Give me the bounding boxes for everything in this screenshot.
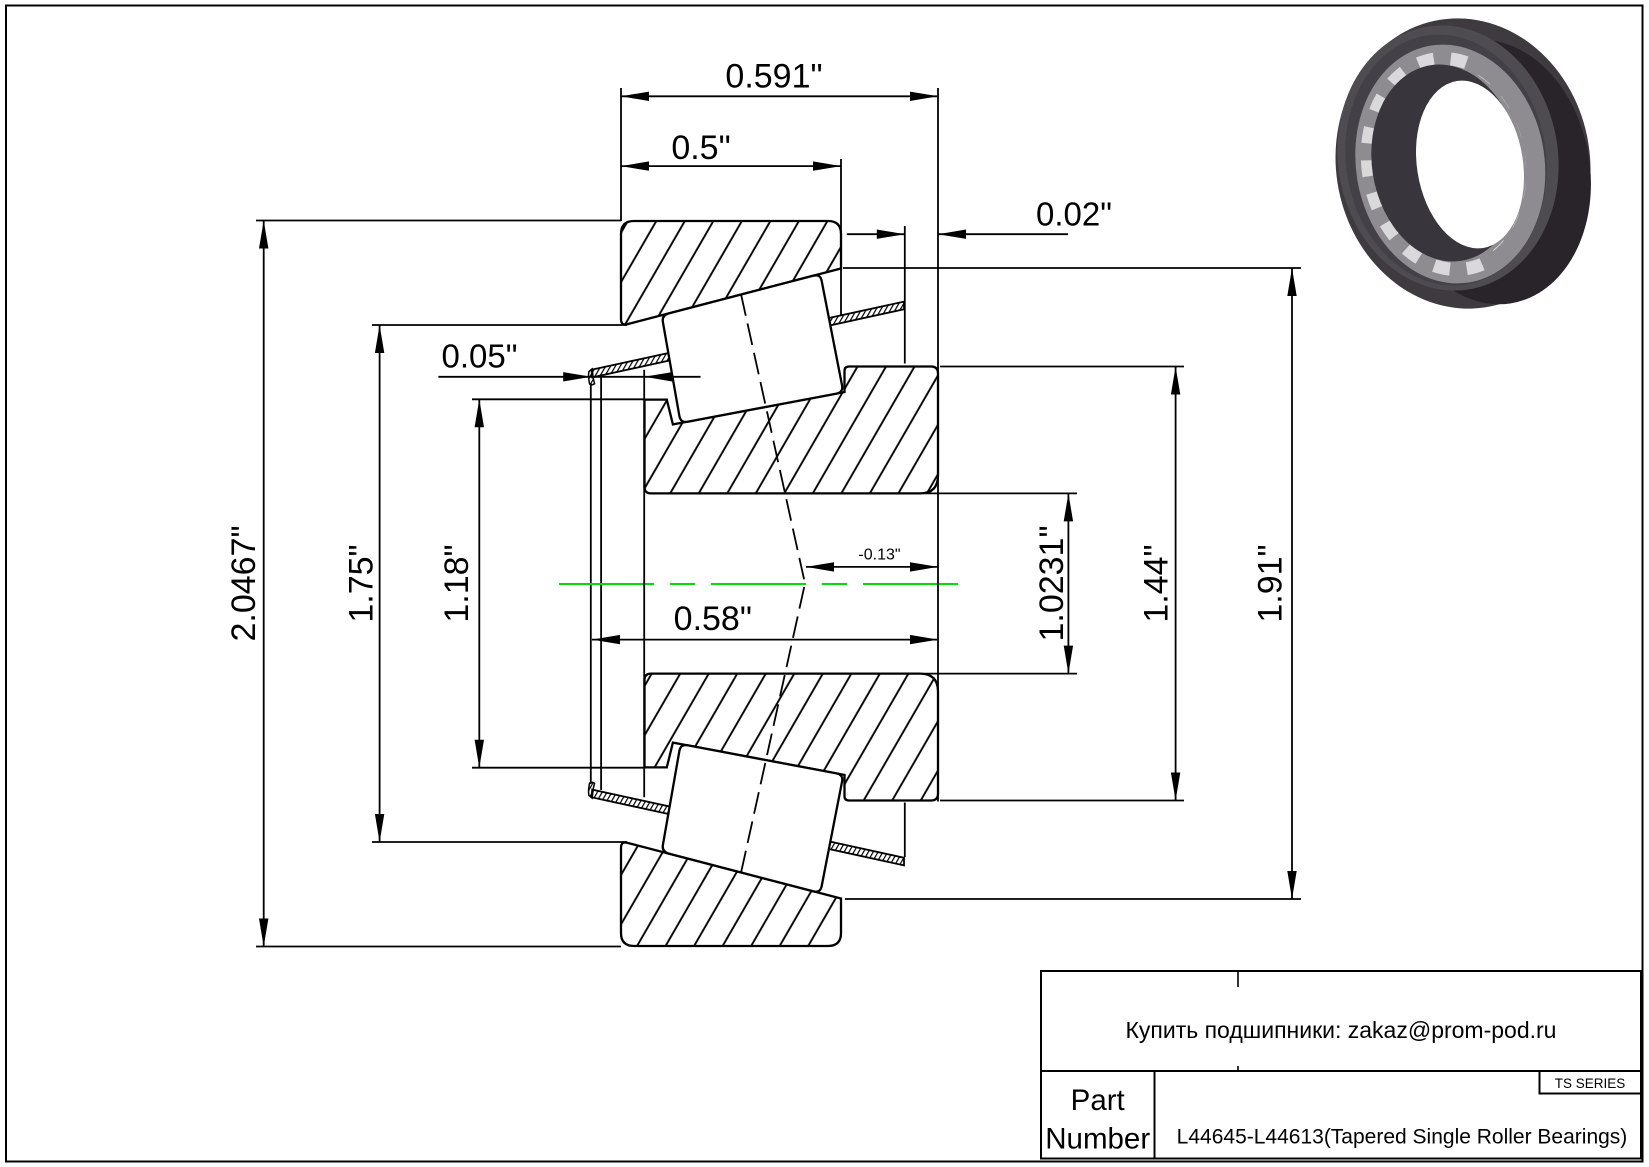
- svg-text:-0.13": -0.13": [858, 547, 900, 564]
- svg-text:Number: Number: [1045, 1123, 1150, 1156]
- svg-text:L44645-L44613(Tapered Single R: L44645-L44613(Tapered Single Roller Bear…: [1177, 1126, 1628, 1149]
- svg-text:1.91": 1.91": [1251, 544, 1289, 622]
- svg-text:2.0467": 2.0467": [225, 525, 263, 641]
- svg-text:0.5": 0.5": [671, 129, 730, 167]
- svg-text:Купить подшипники: zakaz@prom-: Купить подшипники: zakaz@prom-pod.ru: [1126, 1017, 1557, 1043]
- svg-text:0.02": 0.02": [1036, 196, 1112, 233]
- svg-text:0.05": 0.05": [442, 338, 518, 375]
- svg-text:Part: Part: [1071, 1084, 1125, 1117]
- svg-text:1.44": 1.44": [1138, 544, 1176, 622]
- svg-text:1.0231": 1.0231": [1033, 525, 1071, 641]
- svg-text:1.18": 1.18": [438, 544, 476, 622]
- svg-text:TS SERIES: TS SERIES: [1555, 1076, 1626, 1091]
- svg-text:0.591": 0.591": [725, 57, 822, 95]
- svg-text:0.58": 0.58": [674, 600, 752, 638]
- svg-text:1.75": 1.75": [342, 544, 380, 622]
